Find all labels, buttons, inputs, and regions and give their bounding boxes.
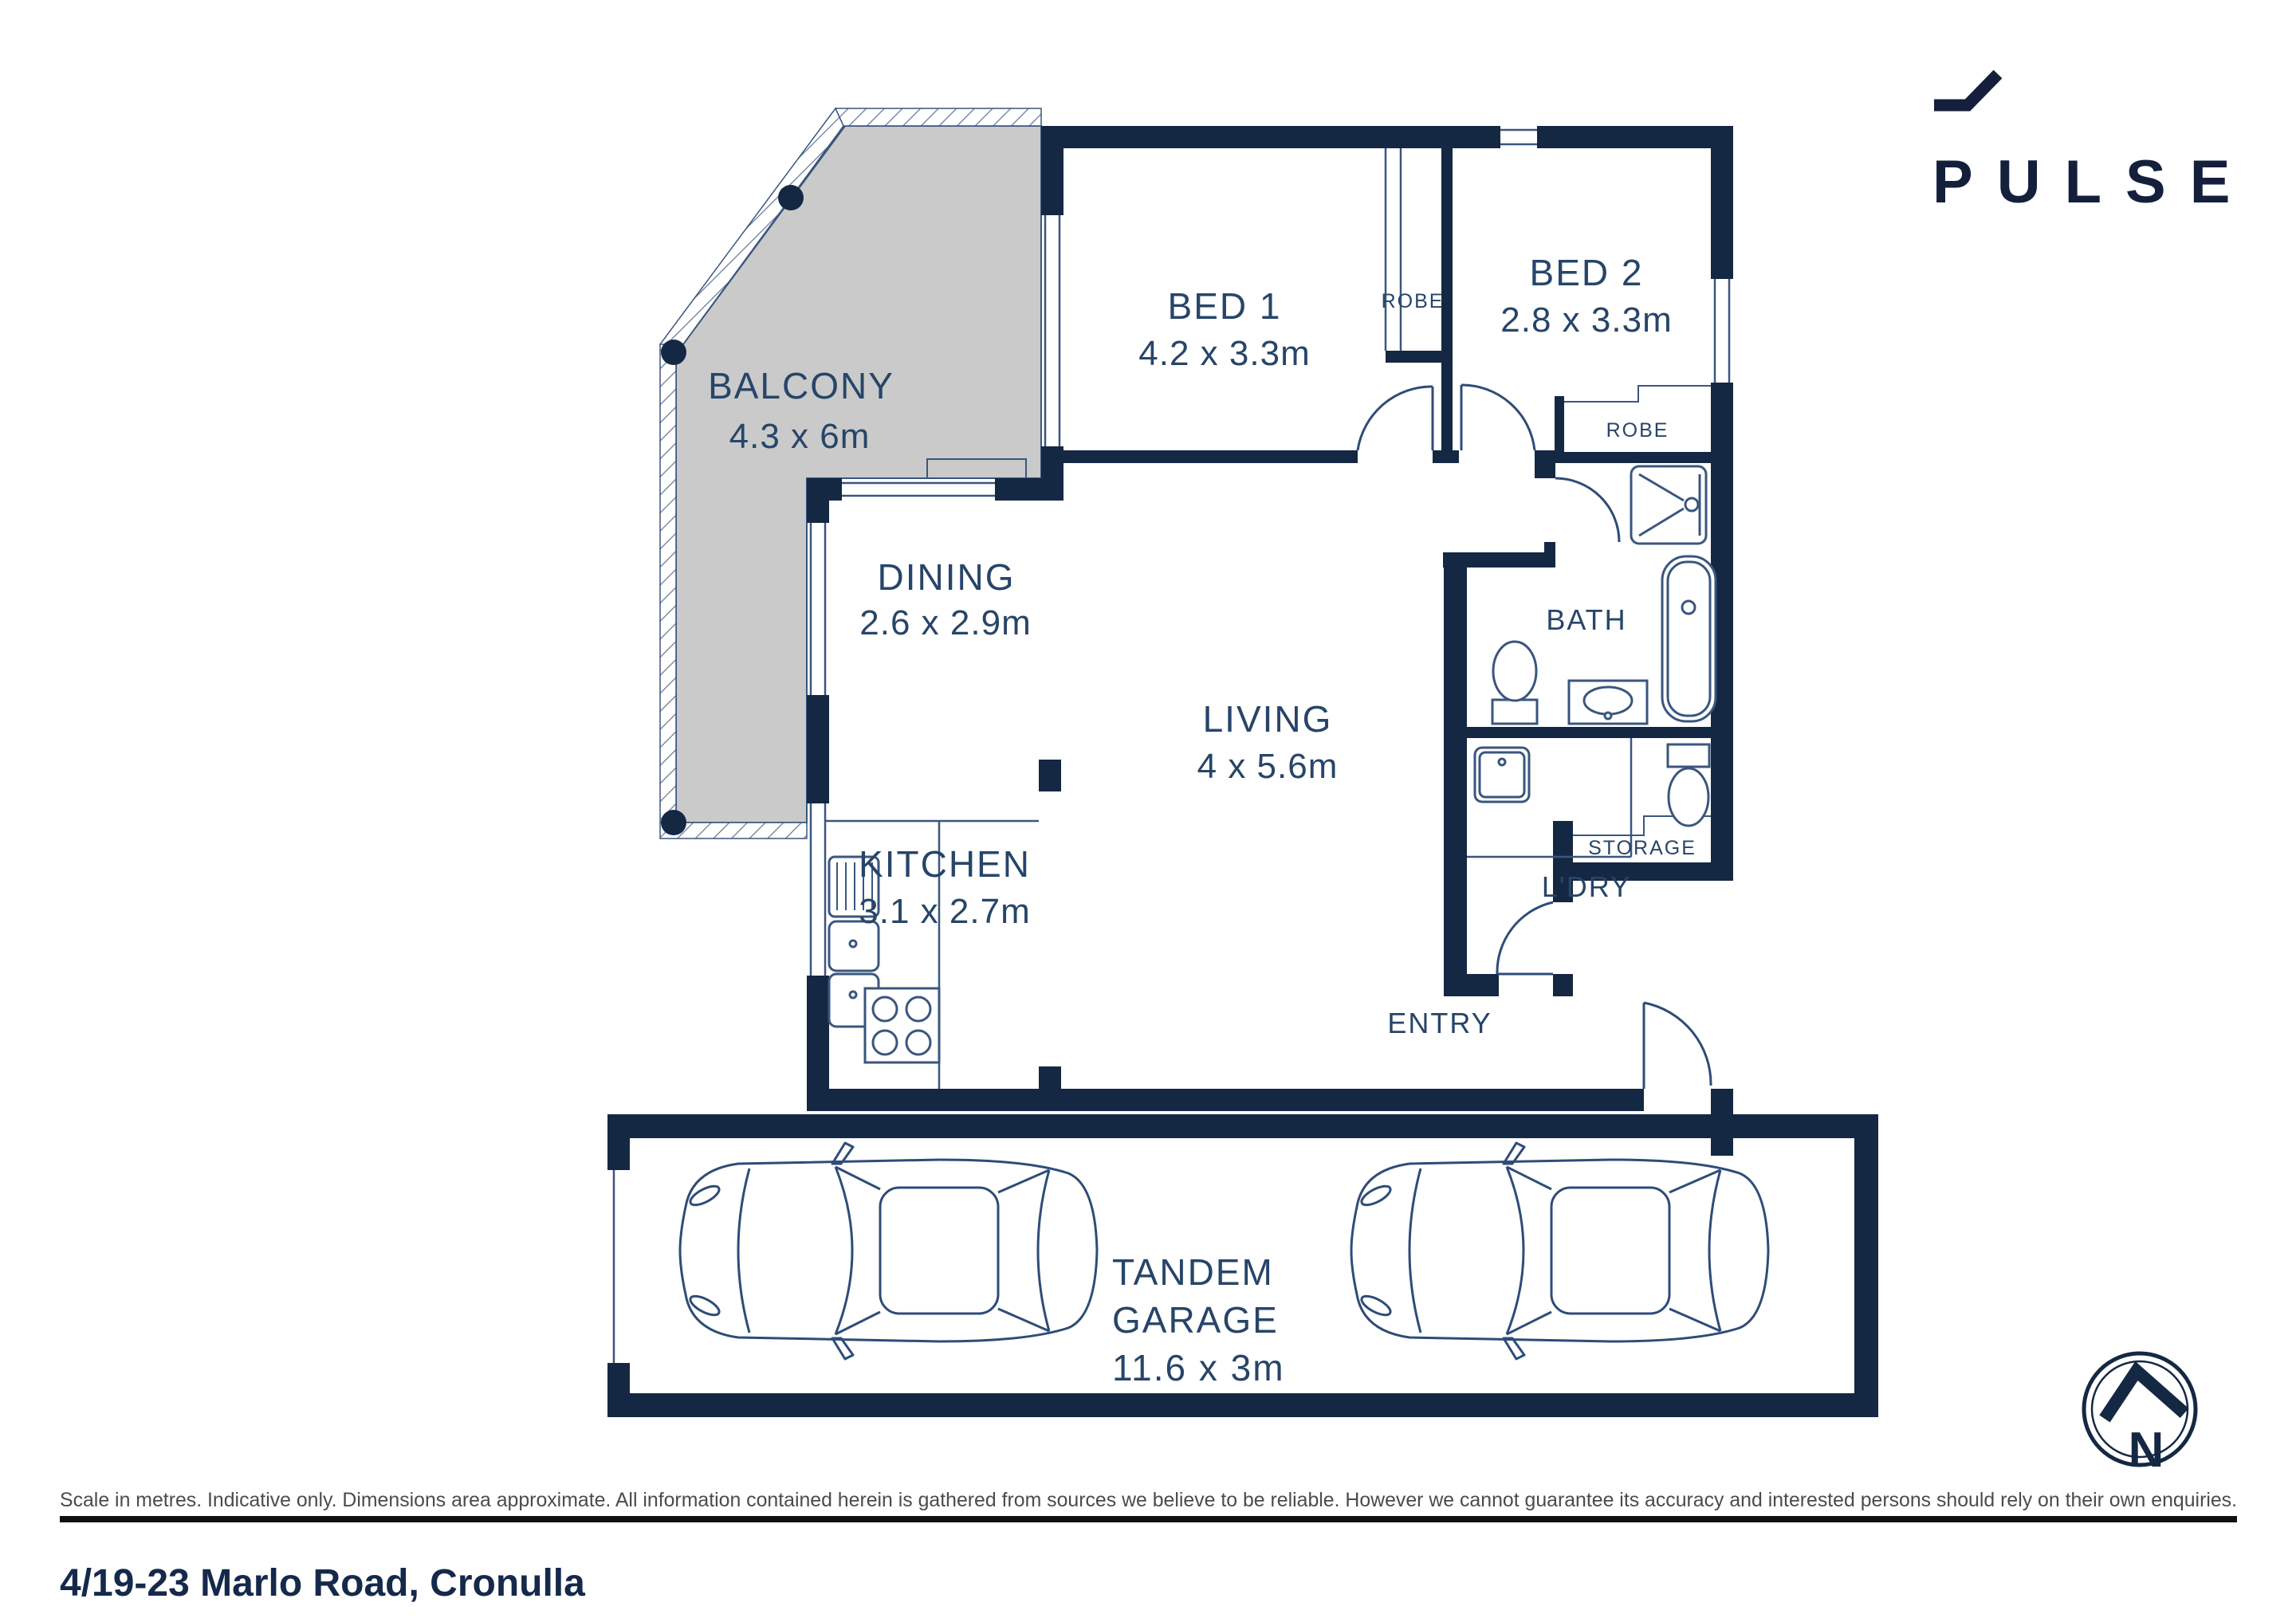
- bed2-window: [1715, 279, 1729, 383]
- bed2-label: BED 2: [1530, 252, 1644, 293]
- bed1-dims: 4.2 x 3.3m: [1138, 334, 1310, 373]
- garage-label-line2: GARAGE: [1112, 1299, 1279, 1341]
- bed1-label: BED 1: [1168, 285, 1282, 327]
- dining-dims: 2.6 x 2.9m: [859, 603, 1031, 642]
- north-compass-icon: N: [2084, 1353, 2196, 1478]
- vanity-icon: [1569, 681, 1647, 724]
- living-label: LIVING: [1203, 698, 1333, 740]
- garage: TANDEM GARAGE 11.6 x 3m: [607, 1114, 1878, 1417]
- disclaimer-text: Scale in metres. Indicative only. Dimens…: [60, 1489, 2237, 1511]
- balcony-post-icon: [778, 185, 804, 210]
- bed1-window: [1045, 215, 1060, 446]
- laundry-door: [1497, 902, 1553, 974]
- cooktop-icon: [865, 988, 939, 1062]
- bath-label: BATH: [1546, 603, 1626, 636]
- garage-dims: 11.6 x 3m: [1112, 1347, 1285, 1388]
- footer-divider: [60, 1516, 2237, 1522]
- logo-text: PULSE: [1932, 148, 2254, 216]
- floorplan-canvas: BALCONY 4.3 x 6m BED 1 4.2 x 3.3m BED 2 …: [0, 0, 2296, 1622]
- car-icon: [680, 1143, 1097, 1359]
- entry-door: [1644, 1003, 1711, 1089]
- footer: Scale in metres. Indicative only. Dimens…: [60, 1489, 2237, 1604]
- balcony-hatch-left: [660, 344, 676, 823]
- floorplan-page: BALCONY 4.3 x 6m BED 1 4.2 x 3.3m BED 2 …: [0, 0, 2296, 1622]
- entry-label: ENTRY: [1387, 1007, 1492, 1039]
- bathtub-icon: [1662, 556, 1716, 721]
- balcony-hatch-top: [835, 108, 1041, 126]
- laundry-sink-icon: [1475, 748, 1529, 802]
- dining-label: DINING: [878, 556, 1016, 598]
- bed2-door: [1461, 385, 1535, 450]
- address-title: 4/19-23 Marlo Road, Cronulla: [60, 1562, 585, 1604]
- robe2-label: ROBE: [1606, 419, 1669, 442]
- compass-n-label: N: [2129, 1423, 2164, 1478]
- bed2-dims: 2.8 x 3.3m: [1500, 300, 1672, 340]
- bath-toilet-icon: [1492, 642, 1537, 724]
- bed1-door: [1358, 387, 1433, 450]
- north-arrow-icon: [2105, 1371, 2184, 1419]
- living-dims: 4 x 5.6m: [1197, 747, 1339, 786]
- storage-label: STORAGE: [1588, 837, 1696, 859]
- bath-door: [1555, 478, 1619, 542]
- robe1-label: ROBE: [1382, 290, 1445, 312]
- dining-slider: [842, 483, 995, 496]
- laundry-label: L'DRY: [1542, 870, 1631, 903]
- balcony-label: BALCONY: [708, 365, 894, 406]
- kitchen-window: [811, 803, 825, 976]
- balcony-area: [660, 108, 1041, 838]
- logo-tick-icon: [1934, 74, 1998, 105]
- balcony-floor: [676, 126, 1041, 823]
- dining-window: [811, 523, 825, 695]
- top-window: [1500, 130, 1537, 144]
- car-icon: [1351, 1143, 1768, 1359]
- bath-fixtures: [1492, 466, 1716, 724]
- kitchen-dims: 3.1 x 2.7m: [859, 892, 1030, 931]
- garage-label-line1: TANDEM: [1112, 1251, 1274, 1293]
- balcony-dims: 4.3 x 6m: [729, 417, 871, 456]
- kitchen-label: KITCHEN: [859, 843, 1031, 885]
- balcony-post-icon: [661, 810, 686, 835]
- balcony-post-icon: [661, 340, 686, 365]
- shower-icon: [1631, 466, 1706, 544]
- pulse-logo: PULSE: [1932, 74, 2254, 216]
- laundry-toilet-icon: [1668, 744, 1709, 826]
